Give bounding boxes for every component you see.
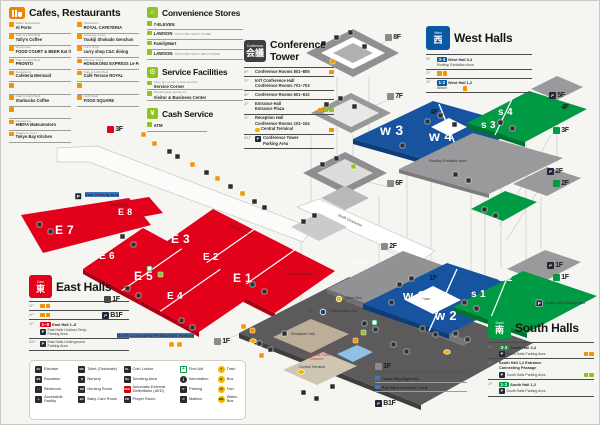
legend-item: BC Baby Care Room [78,395,119,403]
floor-tag-b1f: PB1F [102,312,123,319]
restroom-icon [465,337,470,342]
facility-legend: EV Elevator ES Escalator ♀♂ Restroom ♿ A… [29,360,246,420]
restroom-icon [391,342,396,347]
restaurant-icon [9,59,14,64]
restroom-icon [228,184,233,189]
south-row-2f: 2F South Hall 1,2 Entrance Connecting Pa… [488,358,594,379]
down-arrow-icon: ↓ [309,307,312,313]
restaurant-icon [77,95,82,100]
restaurant-icon [77,22,82,27]
restaurant-list-item: Curry Shop curry shop C&C dining [77,46,139,58]
hall-label: w 1 [403,288,425,303]
restroom-icon [136,293,141,298]
legend-item: TX Taxi [218,385,242,393]
store-name: 7-ELEVEN [154,22,175,27]
restaurant-icon [329,128,334,133]
legend-label: Train [227,367,236,371]
restaurant-icon [9,71,14,76]
hall-label: w 2 [435,308,457,323]
restroom-icon [338,96,343,101]
floor-tag-4f: 4F [553,104,569,111]
legend-icon: i [180,376,187,383]
restaurant-icon [9,120,14,125]
legend-item: i Information [180,375,214,383]
shop-icon [361,330,366,335]
hall-label: E 5 [134,269,153,283]
store-list-item: LAWSON TOKYO BIG SIGHT WEST STORE [147,50,243,59]
legend-label: Restroom [44,387,61,391]
legend-icon: WB [218,396,225,403]
restaurant-list-item: Restaurant HIBIYA Matsumotoro [9,120,71,132]
building-tenants-block: 1F Tokyo Big Sight Inc. Big Sight Servic… [375,363,467,407]
restaurant-icon [190,162,195,167]
west-row-2f: 2F [426,69,532,78]
legend-item: P Parking [180,385,214,393]
restaurant-list-item: Chinese Food HONGKONG EXPRESS Le PARC [77,59,139,71]
conference-row-7f: 7F Int'l Conference Hall Conference Room… [244,76,334,90]
shop-icon [158,272,163,277]
shop-icon [584,373,589,378]
restroom-icon [362,321,367,326]
office-icon [375,385,380,390]
legend-label: Nursing Room [87,387,112,391]
east-row-b1f: B1F P East Halls UndergroundParking Area [29,338,129,351]
restaurant-icon [240,191,245,196]
yurikamome-station-icon [320,309,326,315]
east-halls-title: East Halls [56,280,111,294]
floor-tag-1f: P1F [547,262,563,269]
restaurant-list-item: Cafe & Light Meal Starbucks Coffee [9,95,71,107]
shop-icon [147,21,152,26]
restaurant-list-item: Japanese Food Tsukiji Shokado Genchan [77,34,139,46]
tenant-item: Tokyo Big Sight Inc. [375,374,467,383]
legend-item: T Train [218,365,242,373]
store-note: TOKYO BIG SIGHT STORE [174,32,210,36]
west-row-1f: 1F 1·2West Hall 1,2 Atrium [426,78,532,94]
restaurant-icon [9,83,14,88]
restroom-icon [330,384,335,389]
service-facilities-icon: ⚙ [147,67,158,78]
restroom-icon [312,213,317,218]
restroom-icon [320,162,325,167]
restaurant-icon [463,86,468,91]
store-list-item: 7-ELEVEN [147,21,243,30]
restaurant-icon [584,352,589,357]
restroom-icon [362,44,367,49]
hall-label: E 4 [167,291,183,302]
hall-label: s 4 [498,107,513,118]
restroom-icon [400,143,405,148]
floor-tag-b1f: PB1F [375,400,467,407]
legend-item: ✉ Mailbox [180,395,214,403]
restaurant-icon [46,313,51,318]
shop-icon [589,373,594,378]
restroom-icon [474,306,479,311]
legend-label: Mailbox [189,397,202,401]
floor-tag-3f: 3F [553,127,569,134]
legend-item: CL Coin Locker [124,365,176,373]
shop-icon [329,108,334,113]
legend-label: Smoking Area [133,377,157,381]
restroom-icon [433,332,438,337]
restroom-icon [301,219,306,224]
hall-label: E 7 [55,223,74,237]
legend-icon: BC [78,396,85,403]
restaurant-list-item: Japanese Food Tokyo Bay Kitchen [9,132,71,144]
legend-item: WB Water-Bus [218,395,242,403]
cafes-column-1: Italian Restaurant Al Porto Cafe & Light… [9,22,71,144]
restroom-icon [175,154,180,159]
restaurant-name: HONGKONG EXPRESS Le PARC [84,62,139,67]
restaurant-list-item: Cafe & Light Meal Tully's Coffee [9,34,71,46]
restaurant-icon [9,46,14,51]
legend-item: B Bus [218,375,242,383]
floor-tag-4f: 4F [422,109,438,116]
parking-icon: P [40,329,46,335]
restaurant-icon [9,34,14,39]
legend-item: NR Nursing Room [78,385,119,393]
hall-label: E 1 [233,271,252,285]
legend-label: Parking [189,387,202,391]
restroom-icon [453,172,458,177]
legend-item: WC Toilet (Ostomate) [78,365,119,373]
restaurant-panel-icon [9,7,25,19]
service-icon [147,91,152,96]
legend-label: Toilet (Ostomate) [87,367,117,371]
restroom-icon [438,113,443,118]
restaurant-name: Cafeteria Mermaid [16,74,52,79]
restaurant-name: ROYAL CAFETERIA [84,26,122,31]
restroom-icon [352,104,357,109]
restroom-icon [48,229,53,234]
restroom-icon [420,326,425,331]
restroom-icon [37,222,42,227]
restroom-icon [404,349,409,354]
legend-label: Taxi [227,387,234,391]
floor-tag-2f: P2F [547,168,563,175]
legend-icon: EV [35,366,42,373]
hall-label: E 6 [99,251,115,262]
office-icon [375,376,380,381]
restroom-icon [167,149,172,154]
restroom-icon [268,347,273,352]
conference-title-line1: Conference [270,39,326,51]
legend-icon: TX [218,386,225,393]
restaurant-icon [9,107,14,112]
legend-label: Bus [227,377,234,381]
restaurant-icon [77,34,82,39]
restroom-icon [498,120,503,125]
legend-label: Automatic External Defibrillator (AED) [133,385,176,393]
restaurant-name: Café Terrace ROYAL [84,74,124,79]
restroom-icon [301,390,306,395]
restaurant-list-item: Italian Restaurant Al Porto [9,22,71,34]
conference-row-1f: 1F Reception Hall Conference Rooms 101–1… [244,114,334,134]
legend-item: ♀♂ Restroom [35,385,74,393]
restroom-icon [510,126,515,131]
restaurant-icon [318,108,323,113]
hall-label: E 2 [203,252,219,263]
legend-icon: NR [78,386,85,393]
restaurant-icon [169,342,174,347]
restroom-icon [425,119,430,124]
restaurant-icon [589,352,594,357]
store-name: FamilyMart [154,41,177,46]
store-note: TOKYO BIG SIGHT WEST STORE [174,52,219,56]
restroom-icon [373,327,378,332]
first-aid-icon [372,320,377,325]
shop-icon [147,31,152,36]
map-label: Entrance Plaza [289,272,313,276]
restaurant-icon [437,71,442,76]
restaurant-icon [329,70,334,75]
restaurant-icon [40,304,45,309]
floor-tag-2f: 2F [381,243,397,250]
legend-icon: WC [78,366,85,373]
legend-label: Baby Care Room [87,397,117,401]
restroom-icon [466,178,471,183]
legend-icon: T [218,366,225,373]
legend-label: Prayer Room [133,397,156,401]
hall-number-chip: 1–8 [40,322,51,328]
service-name: Visitor & Business Center [154,95,207,100]
cash-title: Cash Service [162,109,213,119]
restroom-icon [257,341,262,346]
south-halls-title: South Halls [515,321,579,335]
floor-tag-1f: 1F [421,275,437,282]
conference-row-8f: 8F Conference Rooms 801–805 [244,67,334,76]
hall-label: s 1 [471,289,486,300]
legend-icon: PR [124,396,131,403]
parking-letter: P [77,194,80,199]
restroom-icon [179,318,184,323]
restaurant-icon [353,338,358,343]
restaurant-list-item: Food Court FOOD COURT & BEER Eat iT! [9,46,71,58]
restaurant-icon [77,46,82,51]
parking-icon: P [499,351,505,357]
hall-label: s 3 [481,120,496,131]
legend-item: SA Smoking Area [124,375,176,383]
hall-label: E 3 [171,232,190,246]
map-label: East Parking Area [85,192,119,197]
restroom-icon [131,242,136,247]
restaurant-name: FOOD SQUARE [84,99,114,104]
legend-icon: SA [124,376,131,383]
legend-item: PR Prayer Room [124,395,176,403]
legend-icon: ♀♂ [35,386,42,393]
conference-tower-panel: Conference 会議 Conference Tower 8F Confer… [244,39,334,149]
restaurant-name: curry shop C&C dining [84,50,129,55]
map-label: Reception Hall [291,332,314,336]
hall-label: E 8 [118,207,132,217]
south-halls-panel: South南 South Halls 4F 3·4South Hall 3,4 … [488,316,594,397]
service-list-item: Prepaid cards, goods, etc. Visitor & Bus… [147,91,243,101]
restaurant-list-item: Restaurant ROYAL CAFETERIA [77,22,139,34]
restaurant-name: Al Porto [16,26,40,31]
restaurant-icon [241,324,246,329]
restroom-icon [482,207,487,212]
south-halls-badge: South南 [488,316,511,339]
map-label: Entrance [310,357,324,361]
restaurant-icon [215,176,220,181]
legend-label: Coin Locker [133,367,154,371]
restaurant-icon [9,132,14,137]
restaurant-icon [77,59,82,64]
hall-number-chip: 3·4 [499,345,509,351]
bus-icon [250,339,257,344]
hall-label: s 2 [498,273,513,284]
restaurant-icon [259,353,264,358]
restroom-icon [282,331,287,336]
restroom-icon [252,199,257,204]
floor-tag-6f: 6F [387,180,403,187]
restaurant-icon [9,22,14,27]
bus-icon [255,128,260,131]
floor-tag-1f: 1F [375,363,467,370]
restaurant-icon [9,95,14,100]
map-label: Rooftop Exhibition Area [429,159,467,163]
store-name: LAWSON [154,51,173,56]
map-label: Yurikamome Line [329,309,357,313]
service-name: Service Corner [154,84,198,89]
legend-label: Elevator [44,367,58,371]
restroom-icon [204,170,209,175]
restroom-icon [462,300,467,305]
restaurant-list-item [9,107,71,119]
restaurant-list-item [9,83,71,95]
conference-row-b1f: B1F P Conference Tower Parking Area [244,134,334,149]
restaurant-icon [152,141,157,146]
restaurant-icon [77,71,82,76]
restroom-icon [262,205,267,210]
floor-tag-1f: 1F [104,296,120,303]
legend-icon: ♿ [35,396,42,403]
atm-icon [147,122,152,127]
south-row-4f: 4F 3·4South Hall 3,4 PSouth Halls Parkin… [488,342,594,358]
stores-services-panel: ⌂ Convenience Stores 7-ELEVEN LAWSON TOK… [147,7,243,132]
legend-label: Escalator [44,377,60,381]
cash-service-icon: ¥ [147,108,158,119]
shop-icon [351,164,356,169]
conference-row-2f: 2F Entrance Hall Entrance Plaza [244,99,334,113]
legend-icon: P [180,386,187,393]
restaurant-name: FOOD COURT & BEER Eat iT! [16,50,71,55]
hall-label: w 4 [429,128,452,144]
service-title: Service Facilities [162,67,227,77]
restaurant-list-item [77,83,139,95]
legend-item: EV Elevator [35,365,74,373]
restaurant-list-item: Restaurant Cafeteria Mermaid [9,71,71,83]
restaurant-icon [177,342,182,347]
legend-item: + First Aid [180,365,214,373]
restroom-icon [262,289,267,294]
restroom-icon [452,122,457,127]
restroom-icon [334,156,339,161]
tokyo-big-sight-floor-map: ↓ PP Cafes, Restaurants Italian Restaura… [0,0,600,425]
restaurant-name: Starbucks Coffee [16,99,50,104]
legend-item: N Nursery [78,375,119,383]
conference-row-6f: 6F Conference Rooms 601–610 [244,90,334,99]
hall-label: w 3 [380,122,403,138]
parking-icon: P [40,341,46,347]
legend-label: Information [189,377,208,381]
map-label: Event plaza [353,260,372,264]
restaurant-name: PRONTO [16,62,41,67]
restroom-icon [314,396,319,401]
restaurant-icon [250,328,255,333]
map-label: Water Bus [345,296,362,300]
atm-item: ATM [147,122,207,131]
floor-tag-7f: 7F [387,93,403,100]
legend-item: ES Escalator [35,375,74,383]
floor-tag-3f: 3F [107,126,123,133]
legend-label: Nursery [87,377,101,381]
restroom-icon [409,276,414,281]
restaurant-list-item: Cafe & Light Meal Café Terrace ROYAL [77,71,139,83]
store-list-item: LAWSON TOKYO BIG SIGHT STORE [147,31,243,40]
south-row-1f: 1F 1·2South Hall 1,2 PSouth Halls Parkin… [488,379,594,396]
parking-icon: P [499,372,505,378]
legend-icon: ES [35,376,42,383]
legend-icon: CL [124,366,131,373]
cafes-panel-title: Cafes, Restaurants [29,7,121,19]
convenience-title: Convenience Stores [162,8,240,18]
parking-letter: P [538,301,541,306]
parking-icon: P [255,136,261,142]
restaurant-icon [40,313,45,318]
restaurant-name: Tsukiji Shokado Genchan [84,38,134,43]
floor-tag-8f: 8F [385,34,401,41]
west-row-4f: 4F 3·4West Hall 3,4 Rooftop Exhibition A… [426,54,532,69]
convenience-store-icon: ⌂ [147,7,158,18]
west-halls-title: West Halls [454,31,512,45]
bus-icon [444,350,451,355]
conference-tower-badge: Conference 会議 [244,40,266,62]
shop-icon [324,108,329,113]
restaurant-icon [77,83,82,88]
restaurant-name: Tully's Coffee [16,38,42,43]
hall-number-chip: 3·4 [437,57,447,63]
hall-number-chip: 1·2 [499,382,509,388]
west-halls-badge: West西 [426,26,450,50]
hall-number-chip: 1·2 [437,80,447,86]
tenant-item: Big Sight Services Corp. [375,383,467,392]
shop-icon [147,50,152,55]
legend-icon: AED [124,386,131,393]
shop-icon [147,41,152,46]
floor-tag-1f: 1F [214,338,230,345]
legend-icon: ✉ [180,396,187,403]
map-label: South Halls Parking Area [545,301,585,305]
restaurant-name: HIBIYA Matsumotoro [16,123,56,128]
restaurant-icon [443,71,448,76]
cafes-restaurants-panel: Cafes, Restaurants Italian Restaurant Al… [9,7,141,144]
bus-icon [298,370,305,375]
legend-label: Water-Bus [227,395,242,403]
east-row-1f: 1F 1–8East Hall 1–8 P East Halls Outdoor… [29,319,129,338]
restroom-icon [453,331,458,336]
restroom-icon [334,35,339,40]
service-icon [147,81,152,86]
floor-tag-1f: 1F [553,274,569,281]
legend-label: Accessible Facility [44,395,74,403]
service-list-item: Copy, fax, courier & other services Serv… [147,81,243,91]
restroom-icon [397,282,402,287]
floor-tag-2f: 2F [553,180,569,187]
store-list-item: FamilyMart [147,41,243,50]
legend-item: AED Automatic External Defibrillator (AE… [124,385,176,393]
water-bus-icon [336,296,342,302]
